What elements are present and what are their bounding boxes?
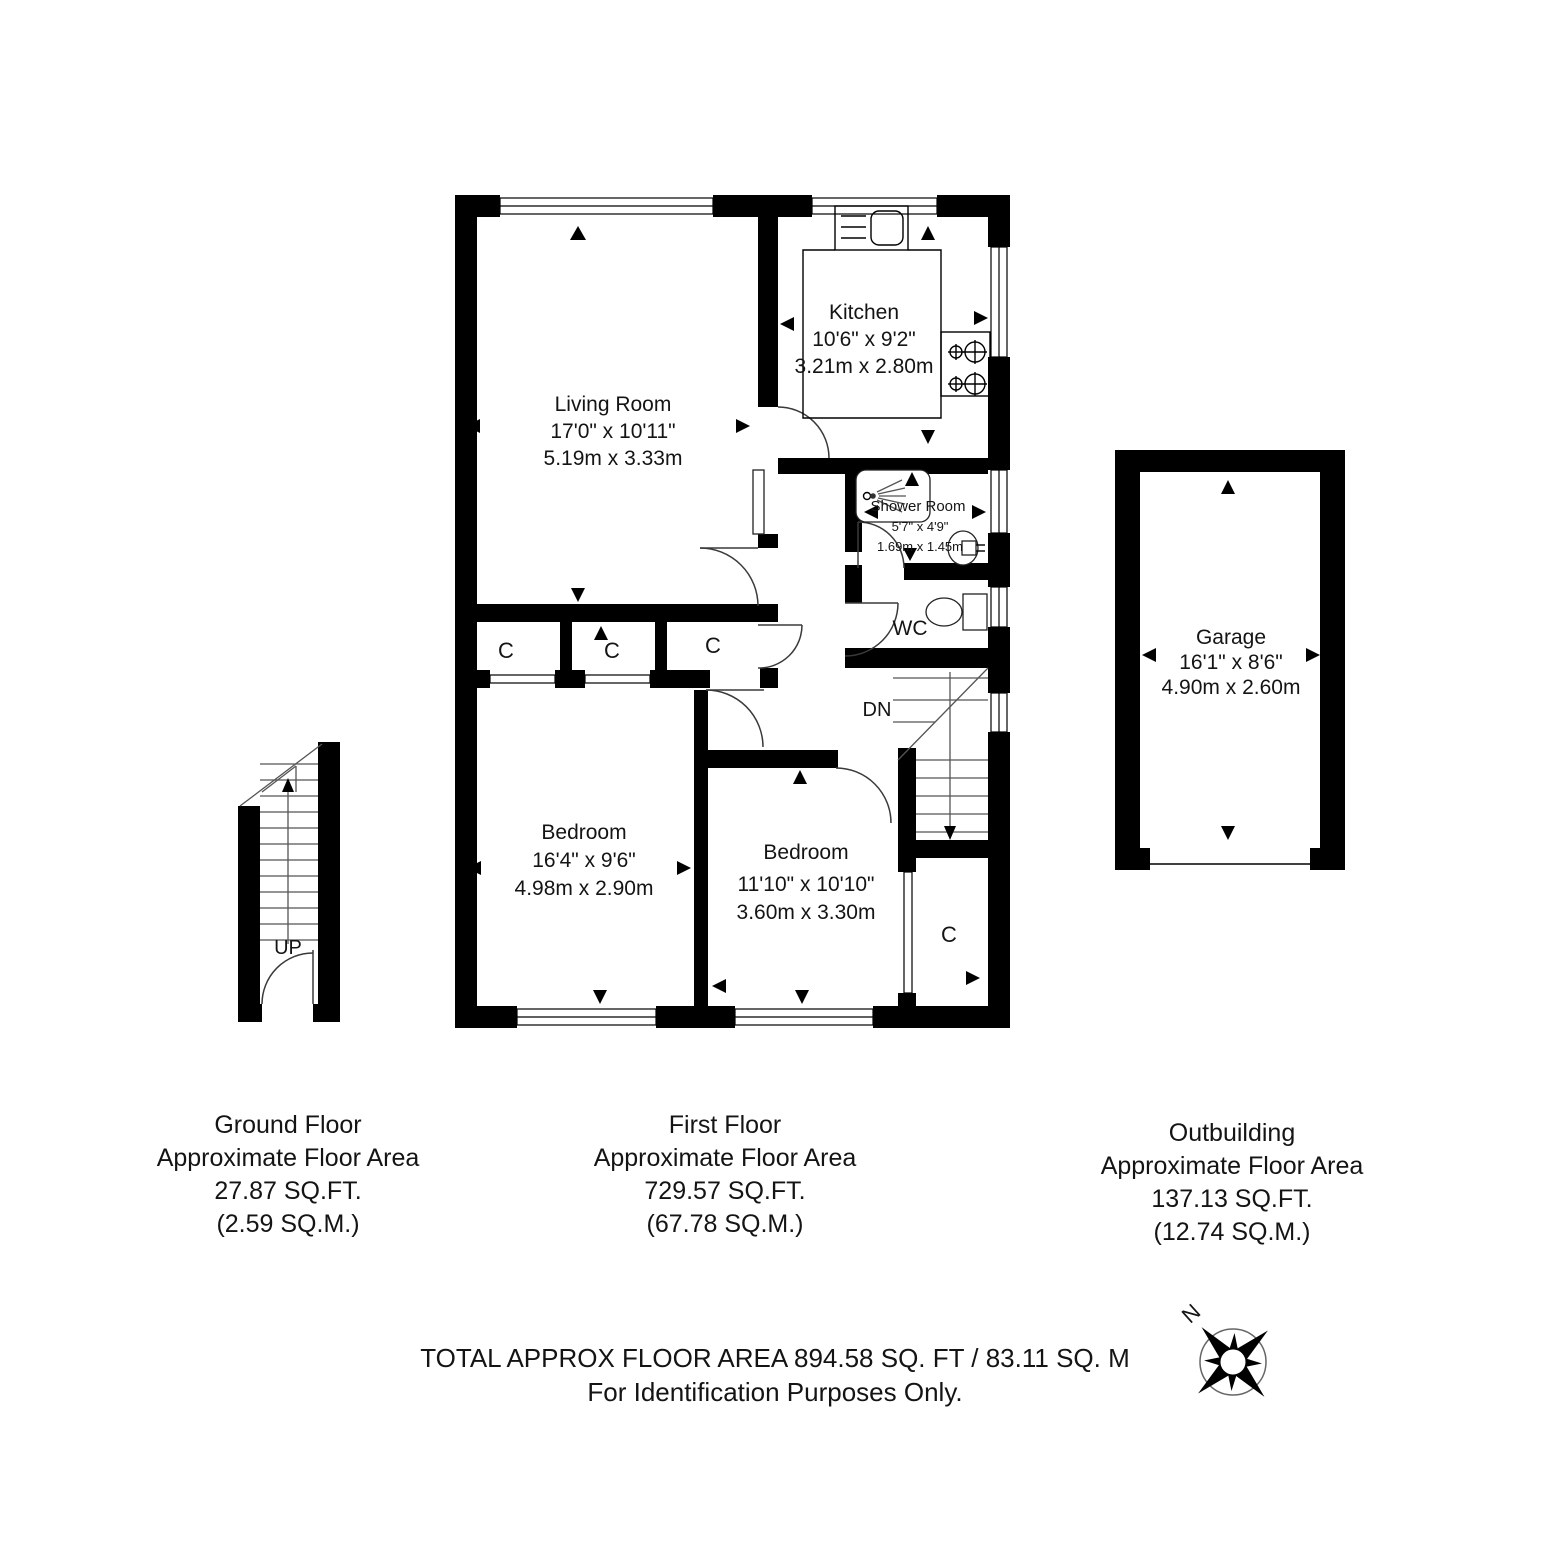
shower-room-metric: 1.69m x 1.45m (877, 539, 963, 554)
compass-rose: N (1167, 1296, 1300, 1429)
ground-floor-sqm: (2.59 SQ.M.) (216, 1210, 359, 1238)
closet-label: C (604, 638, 620, 663)
ground-floor-stairs (238, 742, 340, 1022)
kitchen-name: Kitchen (829, 301, 899, 324)
kitchen-hob (941, 332, 990, 396)
ground-floor-subtitle: Approximate Floor Area (157, 1144, 420, 1172)
compass-north-label: N (1177, 1299, 1206, 1328)
stairs-down-label: DN (863, 699, 892, 721)
outbuilding-sqm: (12.74 SQ.M.) (1154, 1218, 1311, 1246)
bedroom-large-metric: 4.98m x 2.90m (515, 877, 654, 900)
outbuilding-sqft: 137.13 SQ.FT. (1151, 1185, 1312, 1213)
bedroom-large-name: Bedroom (541, 821, 626, 844)
hall-door-leaf (753, 470, 764, 534)
ground-floor-sqft: 27.87 SQ.FT. (214, 1177, 361, 1205)
toilet-cistern (963, 594, 987, 630)
ground-floor-title: Ground Floor (214, 1111, 361, 1139)
floorplan-canvas: Living Room 17'0" x 10'11" 5.19m x 3.33m… (0, 0, 1550, 1550)
kitchen-metric: 3.21m x 2.80m (795, 355, 934, 378)
garage-imperial: 16'1" x 8'6" (1179, 651, 1283, 674)
bedroom-small-metric: 3.60m x 3.30m (737, 901, 876, 924)
wc-fixtures (926, 594, 987, 630)
disclaimer-text: For Identification Purposes Only. (587, 1377, 962, 1407)
garage-name: Garage (1196, 626, 1266, 649)
outbuilding-subtitle: Approximate Floor Area (1101, 1152, 1364, 1180)
first-floor-subtitle: Approximate Floor Area (594, 1144, 857, 1172)
footer: TOTAL APPROX FLOOR AREA 894.58 SQ. FT / … (420, 1343, 1130, 1407)
living-room-metric: 5.19m x 3.33m (544, 447, 683, 470)
shower-room-name: Shower Room (870, 498, 965, 515)
hall-door-arc (758, 625, 802, 668)
ground-floor-door-arc (262, 953, 313, 1004)
bedroom-small-name: Bedroom (763, 841, 848, 864)
stairs-down-arrow (944, 826, 956, 840)
first-floor-title: First Floor (669, 1111, 782, 1139)
outbuilding-title: Outbuilding (1169, 1119, 1295, 1147)
bedroom2-door-arc (836, 768, 891, 823)
living-room-name: Living Room (555, 393, 672, 416)
closet-label: C (941, 922, 957, 947)
living-room-imperial: 17'0" x 10'11" (550, 420, 675, 443)
wc-name: WC (893, 617, 928, 640)
living-room-door-arc (700, 548, 758, 606)
toilet-bowl (926, 598, 962, 626)
floorplan-page: Living Room 17'0" x 10'11" 5.19m x 3.33m… (0, 0, 1550, 1550)
closet-label: C (705, 633, 721, 658)
first-floor-sqft: 729.57 SQ.FT. (644, 1177, 805, 1205)
closet-label: C (498, 638, 514, 663)
area-summaries: Ground Floor Approximate Floor Area 27.8… (157, 1111, 1364, 1246)
bedroom-door-arc (706, 690, 763, 747)
total-area-text: TOTAL APPROX FLOOR AREA 894.58 SQ. FT / … (420, 1343, 1130, 1373)
kitchen-imperial: 10'6" x 9'2" (812, 328, 916, 351)
garage-metric: 4.90m x 2.60m (1162, 676, 1301, 699)
bedroom-large-imperial: 16'4" x 9'6" (532, 849, 636, 872)
bedroom-small-imperial: 11'10" x 10'10" (738, 873, 875, 896)
first-floor-sqm: (67.78 SQ.M.) (647, 1210, 804, 1238)
stairs-up-label: UP (274, 937, 302, 959)
shower-room-imperial: 5'7" x 4'9" (892, 519, 949, 534)
